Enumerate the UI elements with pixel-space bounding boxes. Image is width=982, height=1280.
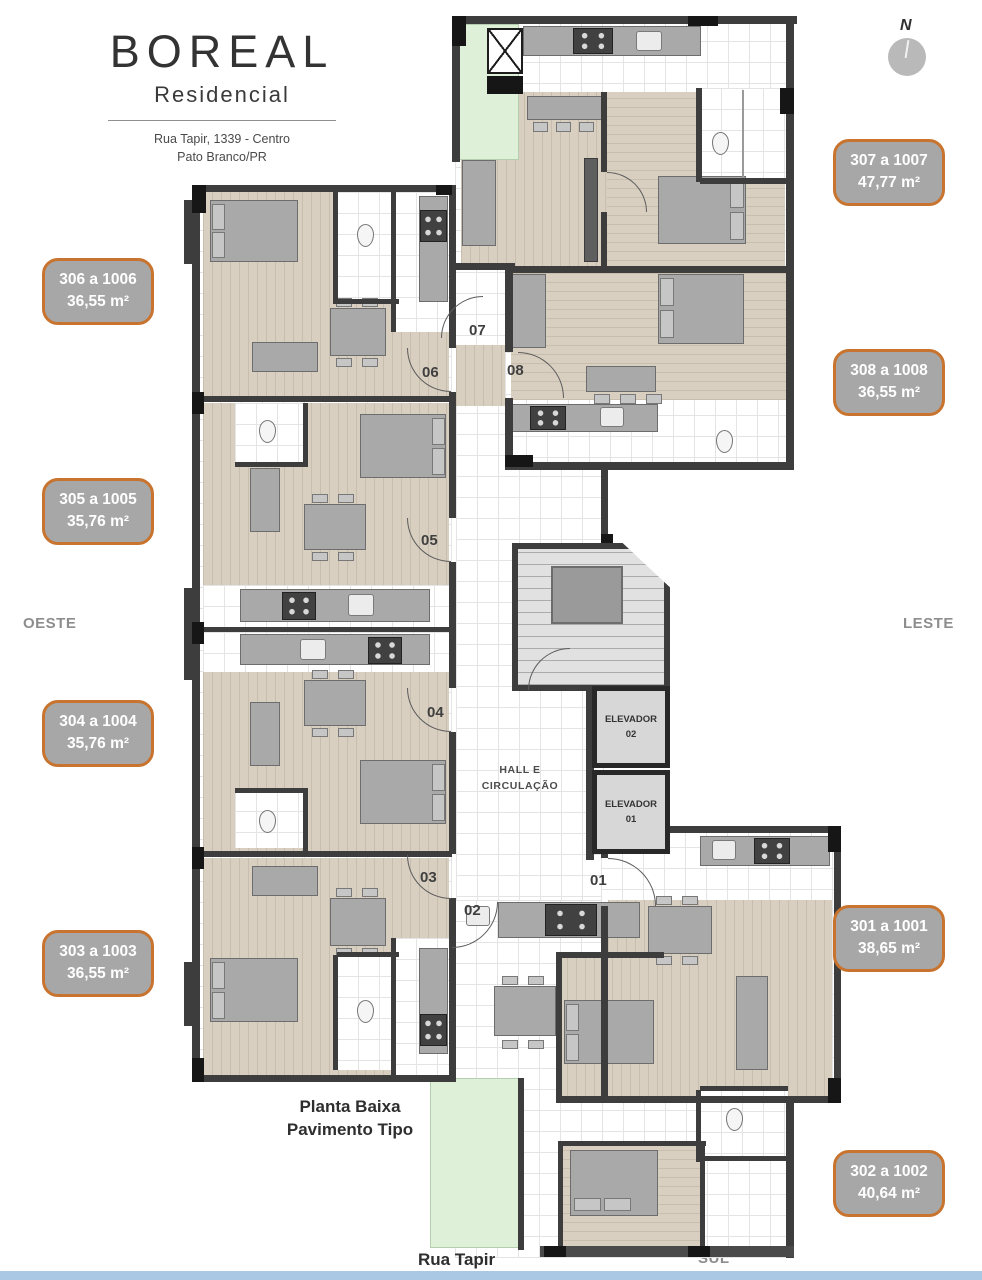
- wall: [192, 1075, 456, 1082]
- unit-badge-301-label: 301 a 1001: [836, 916, 942, 938]
- chair: [594, 394, 610, 404]
- unit-badge-302-area: 40,64 m²: [836, 1183, 942, 1205]
- wall: [303, 788, 308, 852]
- wall: [786, 16, 794, 466]
- column: [688, 1246, 710, 1257]
- kitchen-counter: [240, 589, 430, 622]
- sofa: [250, 468, 280, 532]
- bed-pillow: [432, 764, 445, 791]
- wall: [601, 92, 607, 172]
- wall: [184, 962, 193, 1026]
- wall: [192, 396, 452, 402]
- hall-label: HALL E CIRCULAÇÃO: [455, 762, 585, 795]
- sidewalk-wall: [540, 1246, 794, 1257]
- direction-east: LESTE: [903, 615, 954, 632]
- stair-landing: [551, 566, 623, 624]
- wall: [333, 192, 338, 304]
- column: [436, 185, 452, 195]
- dining-table: [304, 680, 366, 726]
- column: [780, 88, 794, 114]
- bed-pillow: [660, 278, 674, 306]
- elevator-01: ELEVADOR01: [592, 770, 670, 854]
- direction-west: OESTE: [23, 615, 76, 632]
- wall: [391, 192, 396, 332]
- wall: [786, 1096, 794, 1258]
- wall: [601, 212, 607, 270]
- plan-caption-line1: Planta Baixa: [262, 1096, 438, 1119]
- unit-badge-302-label: 302 a 1002: [836, 1161, 942, 1183]
- stove: [545, 904, 597, 936]
- unit-badge-307-area: 47,77 m²: [836, 172, 942, 194]
- chair: [656, 896, 672, 905]
- bed-pillow: [212, 232, 225, 258]
- balcony: [430, 1078, 520, 1248]
- project-name: BOREAL: [92, 26, 352, 78]
- bed-pillow: [432, 448, 445, 475]
- chair: [312, 494, 328, 503]
- compass-north-letter: N: [900, 17, 912, 35]
- chair: [362, 358, 378, 367]
- dining-table: [494, 986, 556, 1036]
- hall-label-line1: HALL E: [455, 762, 585, 778]
- bed-pillow: [212, 204, 225, 230]
- sofa: [252, 342, 318, 372]
- chair: [682, 896, 698, 905]
- chair: [528, 976, 544, 985]
- dining-table: [330, 898, 386, 946]
- stove: [420, 210, 447, 242]
- unit-badge-301: 301 a 1001 38,65 m²: [833, 905, 945, 972]
- column: [688, 16, 718, 26]
- column: [192, 185, 206, 213]
- unit-badge-306-label: 306 a 1006: [45, 269, 151, 291]
- chair: [336, 888, 352, 897]
- bed-pillow: [574, 1198, 601, 1211]
- wall: [700, 1086, 788, 1091]
- column: [192, 622, 204, 644]
- floor-plan-page: BOREAL Residencial Rua Tapir, 1339 - Cen…: [0, 0, 982, 1280]
- chair: [338, 552, 354, 561]
- chair: [338, 670, 354, 679]
- chair: [620, 394, 636, 404]
- unit-badge-307-label: 307 a 1007: [836, 150, 942, 172]
- wall: [452, 16, 797, 24]
- wall: [391, 938, 396, 1078]
- unit-badge-305-label: 305 a 1005: [45, 489, 151, 511]
- dining-table: [304, 504, 366, 550]
- bed-pillow: [730, 212, 744, 240]
- column: [828, 1078, 841, 1103]
- wall: [556, 952, 664, 958]
- sink: [600, 407, 624, 427]
- wall: [303, 403, 308, 467]
- column: [828, 826, 841, 852]
- chair: [312, 552, 328, 561]
- wall: [337, 952, 399, 957]
- chair: [338, 494, 354, 503]
- title-divider: [108, 120, 336, 121]
- unit-badge-303: 303 a 1003 36,55 m²: [42, 930, 154, 997]
- wall: [235, 462, 307, 467]
- wall: [518, 1078, 524, 1250]
- bed-pillow: [432, 418, 445, 445]
- sink: [300, 639, 326, 660]
- unit-entry-number-03: 03: [420, 869, 437, 886]
- unit-badge-304: 304 a 1004 35,76 m²: [42, 700, 154, 767]
- unit-entry-number-01: 01: [590, 872, 607, 889]
- hall-label-line2: CIRCULAÇÃO: [455, 778, 585, 794]
- sink: [636, 31, 662, 51]
- plan-caption-line2: Pavimento Tipo: [262, 1119, 438, 1142]
- chair: [502, 976, 518, 985]
- shaft: [487, 28, 523, 74]
- wall: [696, 88, 702, 182]
- unit-entry-number-05: 05: [421, 532, 438, 549]
- project-subtitle: Residencial: [92, 82, 352, 108]
- chair: [362, 888, 378, 897]
- wall: [558, 1141, 706, 1146]
- kitchen-island: [527, 96, 603, 120]
- bed-pillow: [212, 992, 225, 1019]
- unit-badge-304-label: 304 a 1004: [45, 711, 151, 733]
- stove: [420, 1014, 447, 1046]
- wall: [235, 788, 307, 793]
- unit-badge-303-area: 36,55 m²: [45, 963, 151, 985]
- column: [544, 1246, 566, 1257]
- elevator-01-number: 01: [605, 812, 657, 827]
- title-block: BOREAL Residencial Rua Tapir, 1339 - Cen…: [92, 26, 352, 166]
- wall: [556, 958, 562, 1100]
- bottom-border-bar: [0, 1271, 982, 1280]
- bed-pillow: [604, 1198, 631, 1211]
- column: [192, 847, 204, 869]
- elevator-02-label: ELEVADOR: [605, 714, 657, 725]
- unit-entry-number-08: 08: [507, 362, 524, 379]
- unit-badge-307: 307 a 1007 47,77 m²: [833, 139, 945, 206]
- wall: [505, 462, 794, 470]
- stool: [533, 122, 548, 132]
- plan-caption: Planta Baixa Pavimento Tipo: [262, 1096, 438, 1142]
- wall: [601, 1096, 841, 1103]
- column: [452, 16, 466, 46]
- tv-panel: [584, 158, 598, 262]
- unit-badge-302: 302 a 1002 40,64 m²: [833, 1150, 945, 1217]
- stool: [579, 122, 594, 132]
- stove: [573, 28, 613, 54]
- column: [505, 455, 533, 467]
- wall: [700, 178, 792, 184]
- project-address-line2: Pato Branco/PR: [92, 148, 352, 166]
- unit-badge-308: 308 a 1008 36,55 m²: [833, 349, 945, 416]
- chair: [682, 956, 698, 965]
- chair: [336, 358, 352, 367]
- wall: [505, 266, 513, 352]
- stove: [530, 406, 566, 430]
- sofa: [736, 976, 768, 1070]
- chair: [338, 728, 354, 737]
- column: [192, 1058, 204, 1082]
- chair: [312, 670, 328, 679]
- bed-pillow: [566, 1004, 579, 1031]
- shower-divider: [742, 90, 744, 178]
- elevator-01-label: ELEVADOR: [605, 799, 657, 810]
- stove: [754, 838, 790, 864]
- wall: [700, 1156, 788, 1161]
- bed-pillow: [432, 794, 445, 821]
- elevator-02: ELEVADOR02: [592, 686, 670, 768]
- unit-badge-306-area: 36,55 m²: [45, 291, 151, 313]
- elevator-02-number: 02: [605, 727, 657, 742]
- chair: [528, 1040, 544, 1049]
- sink: [712, 840, 736, 860]
- street-label: Rua Tapir: [418, 1250, 495, 1270]
- sink: [348, 594, 374, 616]
- sofa: [252, 866, 318, 896]
- unit-entry-number-07: 07: [469, 322, 486, 339]
- wall: [192, 185, 456, 192]
- dining-table: [330, 308, 386, 356]
- unit-badge-305-area: 35,76 m²: [45, 511, 151, 533]
- unit-entry-number-02: 02: [464, 902, 481, 919]
- bed-pillow: [566, 1034, 579, 1061]
- unit-entry-number-04: 04: [427, 704, 444, 721]
- wall: [337, 299, 399, 304]
- tile-floor: [337, 192, 395, 302]
- wall: [700, 1141, 705, 1253]
- unit-badge-308-area: 36,55 m²: [836, 382, 942, 404]
- project-address-line1: Rua Tapir, 1339 - Centro: [92, 130, 352, 148]
- dining-table: [586, 366, 656, 392]
- unit-badge-301-area: 38,65 m²: [836, 938, 942, 960]
- wall: [556, 1096, 606, 1103]
- wall: [192, 627, 452, 632]
- unit-badge-305: 305 a 1005 35,76 m²: [42, 478, 154, 545]
- stool: [556, 122, 571, 132]
- bed-pillow: [730, 180, 744, 208]
- sofa: [462, 160, 496, 246]
- wall: [449, 392, 456, 518]
- unit-badge-306: 306 a 1006 36,55 m²: [42, 258, 154, 325]
- wall: [505, 266, 794, 273]
- unit-badge-308-label: 308 a 1008: [836, 360, 942, 382]
- stove: [368, 637, 402, 664]
- wall: [333, 955, 338, 1070]
- sofa: [512, 274, 546, 348]
- bed-pillow: [212, 962, 225, 989]
- sofa: [250, 702, 280, 766]
- wall: [449, 562, 456, 688]
- column: [192, 392, 204, 414]
- chair: [646, 394, 662, 404]
- chair: [312, 728, 328, 737]
- chair: [502, 1040, 518, 1049]
- stove: [282, 592, 316, 620]
- column: [487, 76, 523, 94]
- tile-floor: [700, 88, 788, 180]
- wall: [558, 1141, 563, 1253]
- unit-badge-303-label: 303 a 1003: [45, 941, 151, 963]
- unit-badge-304-area: 35,76 m²: [45, 733, 151, 755]
- wall: [601, 906, 608, 1096]
- unit-entry-number-06: 06: [422, 364, 439, 381]
- dining-table: [648, 906, 712, 954]
- bed-pillow: [660, 310, 674, 338]
